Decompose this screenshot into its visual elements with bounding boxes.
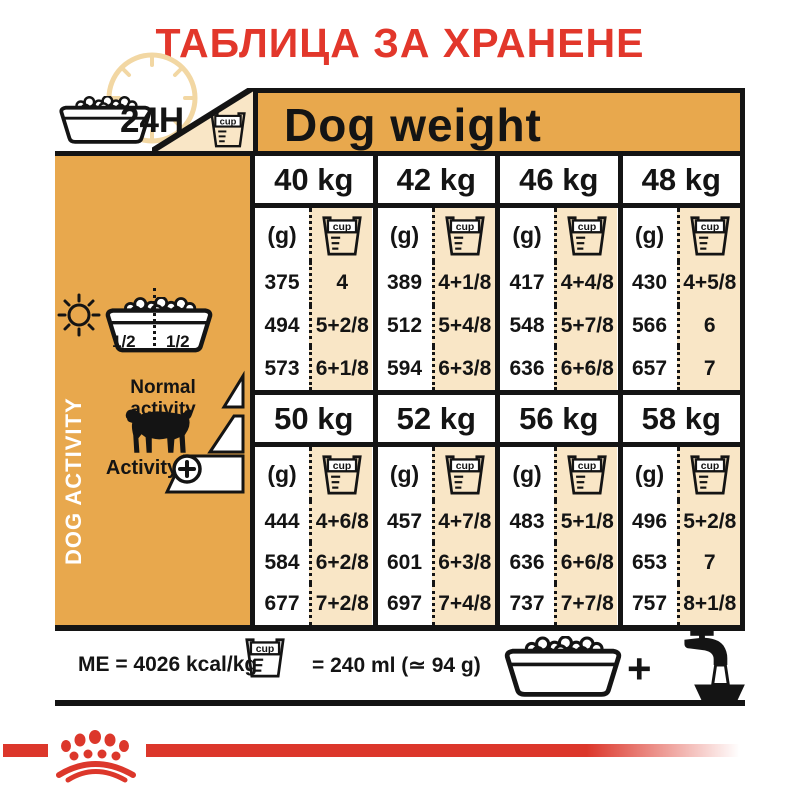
grams-value: 430 xyxy=(623,262,677,305)
footer-divider xyxy=(55,700,745,706)
grams-value: 496 xyxy=(623,501,677,542)
measuring-cup-icon: cup xyxy=(245,635,285,679)
grams-value: 697 xyxy=(378,584,432,625)
measuring-cup-icon: cup xyxy=(445,213,485,257)
measuring-cup-icon: cup xyxy=(322,452,362,496)
grams-header: (g) xyxy=(255,447,309,501)
day-night-divider xyxy=(153,288,156,352)
cup-value: 7+7/8 xyxy=(554,584,617,625)
plus-sign: + xyxy=(627,645,652,693)
header-corner: cup xyxy=(152,88,253,151)
grams-value: 584 xyxy=(255,542,309,583)
cup-value: 4+4/8 xyxy=(554,262,617,305)
grams-header: (g) xyxy=(255,208,309,262)
dog-activity-label: DOG ACTIVITY xyxy=(58,366,90,596)
measuring-cup-icon: cup xyxy=(567,213,607,257)
svg-text:cup: cup xyxy=(578,461,597,472)
cup-value: 6+3/8 xyxy=(432,542,495,583)
sun-icon xyxy=(56,292,102,338)
cup-value: 4+6/8 xyxy=(309,501,372,542)
water-faucet-bowl-icon xyxy=(657,628,745,704)
activity-level-triangles xyxy=(100,370,246,500)
cup-icon: cup xyxy=(210,109,246,149)
table-column-42kg: 42 kg (g) cup 389 4+1/8 512 5+4/8 594 6+… xyxy=(373,156,496,625)
cup-value: 4 xyxy=(309,262,372,305)
measuring-cup-icon: cup xyxy=(567,452,607,496)
measuring-cup-icon: cup xyxy=(322,213,362,257)
table-column-46kg: 46 kg (g) cup 417 4+4/8 548 5+7/8 636 6+… xyxy=(495,156,618,625)
grams-value: 444 xyxy=(255,501,309,542)
svg-text:cup: cup xyxy=(455,461,474,472)
cup-value: 4+1/8 xyxy=(432,262,495,305)
grams-value: 653 xyxy=(623,542,677,583)
svg-text:cup: cup xyxy=(700,461,719,472)
grams-value: 657 xyxy=(623,347,677,390)
grams-header: (g) xyxy=(378,447,432,501)
svg-text:cup: cup xyxy=(220,116,237,127)
cup-header: cup xyxy=(677,208,740,262)
cup-value: 4+5/8 xyxy=(677,262,740,305)
grams-value: 601 xyxy=(378,542,432,583)
grams-value: 757 xyxy=(623,584,677,625)
table-column-40kg: 40 kg (g) cup 375 4 494 5+2/8 573 6+1/8 … xyxy=(250,156,373,625)
cup-header: cup xyxy=(432,208,495,262)
weight-header: 58 kg xyxy=(623,390,741,447)
measuring-cup-icon: cup xyxy=(690,452,730,496)
brand-stripe-right xyxy=(146,744,758,757)
measuring-cup-icon: cup xyxy=(445,452,485,496)
cup-value: 5+2/8 xyxy=(309,305,372,348)
half-morning-label: 1/2 xyxy=(112,332,136,352)
svg-text:cup: cup xyxy=(578,222,597,233)
grams-value: 375 xyxy=(255,262,309,305)
metabolizable-energy-label: ME = 4026 kcal/kg xyxy=(78,653,257,677)
cup-value: 6+6/8 xyxy=(554,347,617,390)
grams-value: 677 xyxy=(255,584,309,625)
measuring-cup-icon: cup xyxy=(210,109,246,149)
grams-value: 494 xyxy=(255,305,309,348)
svg-text:cup: cup xyxy=(700,222,719,233)
grams-value: 566 xyxy=(623,305,677,348)
svg-text:cup: cup xyxy=(256,644,275,655)
grams-header: (g) xyxy=(623,447,677,501)
cup-icon-large: cup xyxy=(245,635,285,679)
cup-value: 4+7/8 xyxy=(432,501,495,542)
weight-header: 50 kg xyxy=(255,390,373,447)
grams-value: 594 xyxy=(378,347,432,390)
cup-value: 7 xyxy=(677,542,740,583)
grams-value: 483 xyxy=(500,501,554,542)
weight-header: 52 kg xyxy=(378,390,496,447)
half-evening-label: 1/2 xyxy=(166,332,190,352)
cup-value: 5+7/8 xyxy=(554,305,617,348)
weight-header: 48 kg xyxy=(623,156,741,208)
cup-value: 7 xyxy=(677,347,740,390)
weight-header: 42 kg xyxy=(378,156,496,208)
grams-header: (g) xyxy=(378,208,432,262)
cup-value: 5+2/8 xyxy=(677,501,740,542)
measuring-cup-icon: cup xyxy=(690,213,730,257)
grams-value: 389 xyxy=(378,262,432,305)
cup-header: cup xyxy=(432,447,495,501)
grams-header: (g) xyxy=(500,208,554,262)
svg-text:cup: cup xyxy=(333,461,352,472)
weight-header: 40 kg xyxy=(255,156,373,208)
cup-header: cup xyxy=(309,447,372,501)
cup-volume-label: = 240 ml (≃ 94 g) xyxy=(312,653,481,678)
dog-weight-header: Dog weight xyxy=(253,88,745,156)
cup-header: cup xyxy=(677,447,740,501)
grams-value: 636 xyxy=(500,347,554,390)
grams-value: 457 xyxy=(378,501,432,542)
cup-value: 6+1/8 xyxy=(309,347,372,390)
cup-value: 6+3/8 xyxy=(432,347,495,390)
svg-text:cup: cup xyxy=(333,222,352,233)
cup-value: 7+4/8 xyxy=(432,584,495,625)
grams-value: 548 xyxy=(500,305,554,348)
crown-paw-logo xyxy=(40,727,155,783)
kibble-bowl-icon xyxy=(503,636,623,700)
grams-value: 512 xyxy=(378,305,432,348)
svg-text:cup: cup xyxy=(455,222,474,233)
grams-header: (g) xyxy=(623,208,677,262)
cup-header: cup xyxy=(554,208,617,262)
grams-value: 636 xyxy=(500,542,554,583)
grams-value: 417 xyxy=(500,262,554,305)
cup-value: 5+1/8 xyxy=(554,501,617,542)
cup-value: 6+6/8 xyxy=(554,542,617,583)
table-column-48kg: 48 kg (g) cup 430 4+5/8 566 6 657 7 58 k… xyxy=(618,156,746,625)
weight-header: 56 kg xyxy=(500,390,618,447)
grams-value: 573 xyxy=(255,347,309,390)
cup-value: 6+2/8 xyxy=(309,542,372,583)
cup-header: cup xyxy=(554,447,617,501)
cup-value: 5+4/8 xyxy=(432,305,495,348)
cup-header: cup xyxy=(309,208,372,262)
cup-value: 8+1/8 xyxy=(677,584,740,625)
weight-header: 46 kg xyxy=(500,156,618,208)
cup-value: 7+2/8 xyxy=(309,584,372,625)
grams-value: 737 xyxy=(500,584,554,625)
grams-header: (g) xyxy=(500,447,554,501)
cup-value: 6 xyxy=(677,305,740,348)
